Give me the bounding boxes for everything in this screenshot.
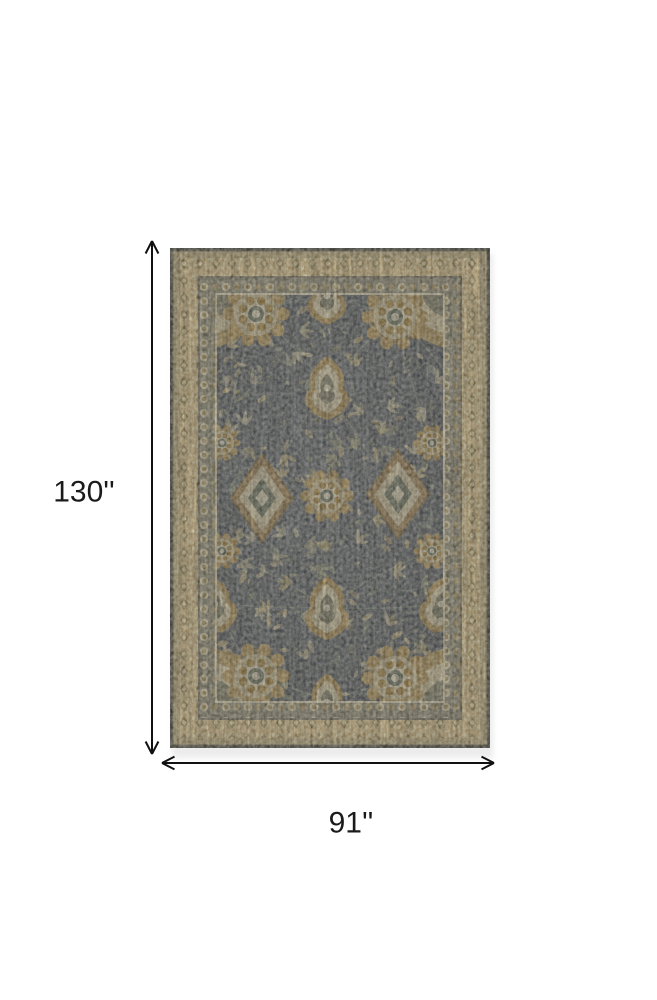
- svg-text:130'': 130'': [53, 476, 115, 509]
- svg-text:91'': 91'': [329, 807, 374, 840]
